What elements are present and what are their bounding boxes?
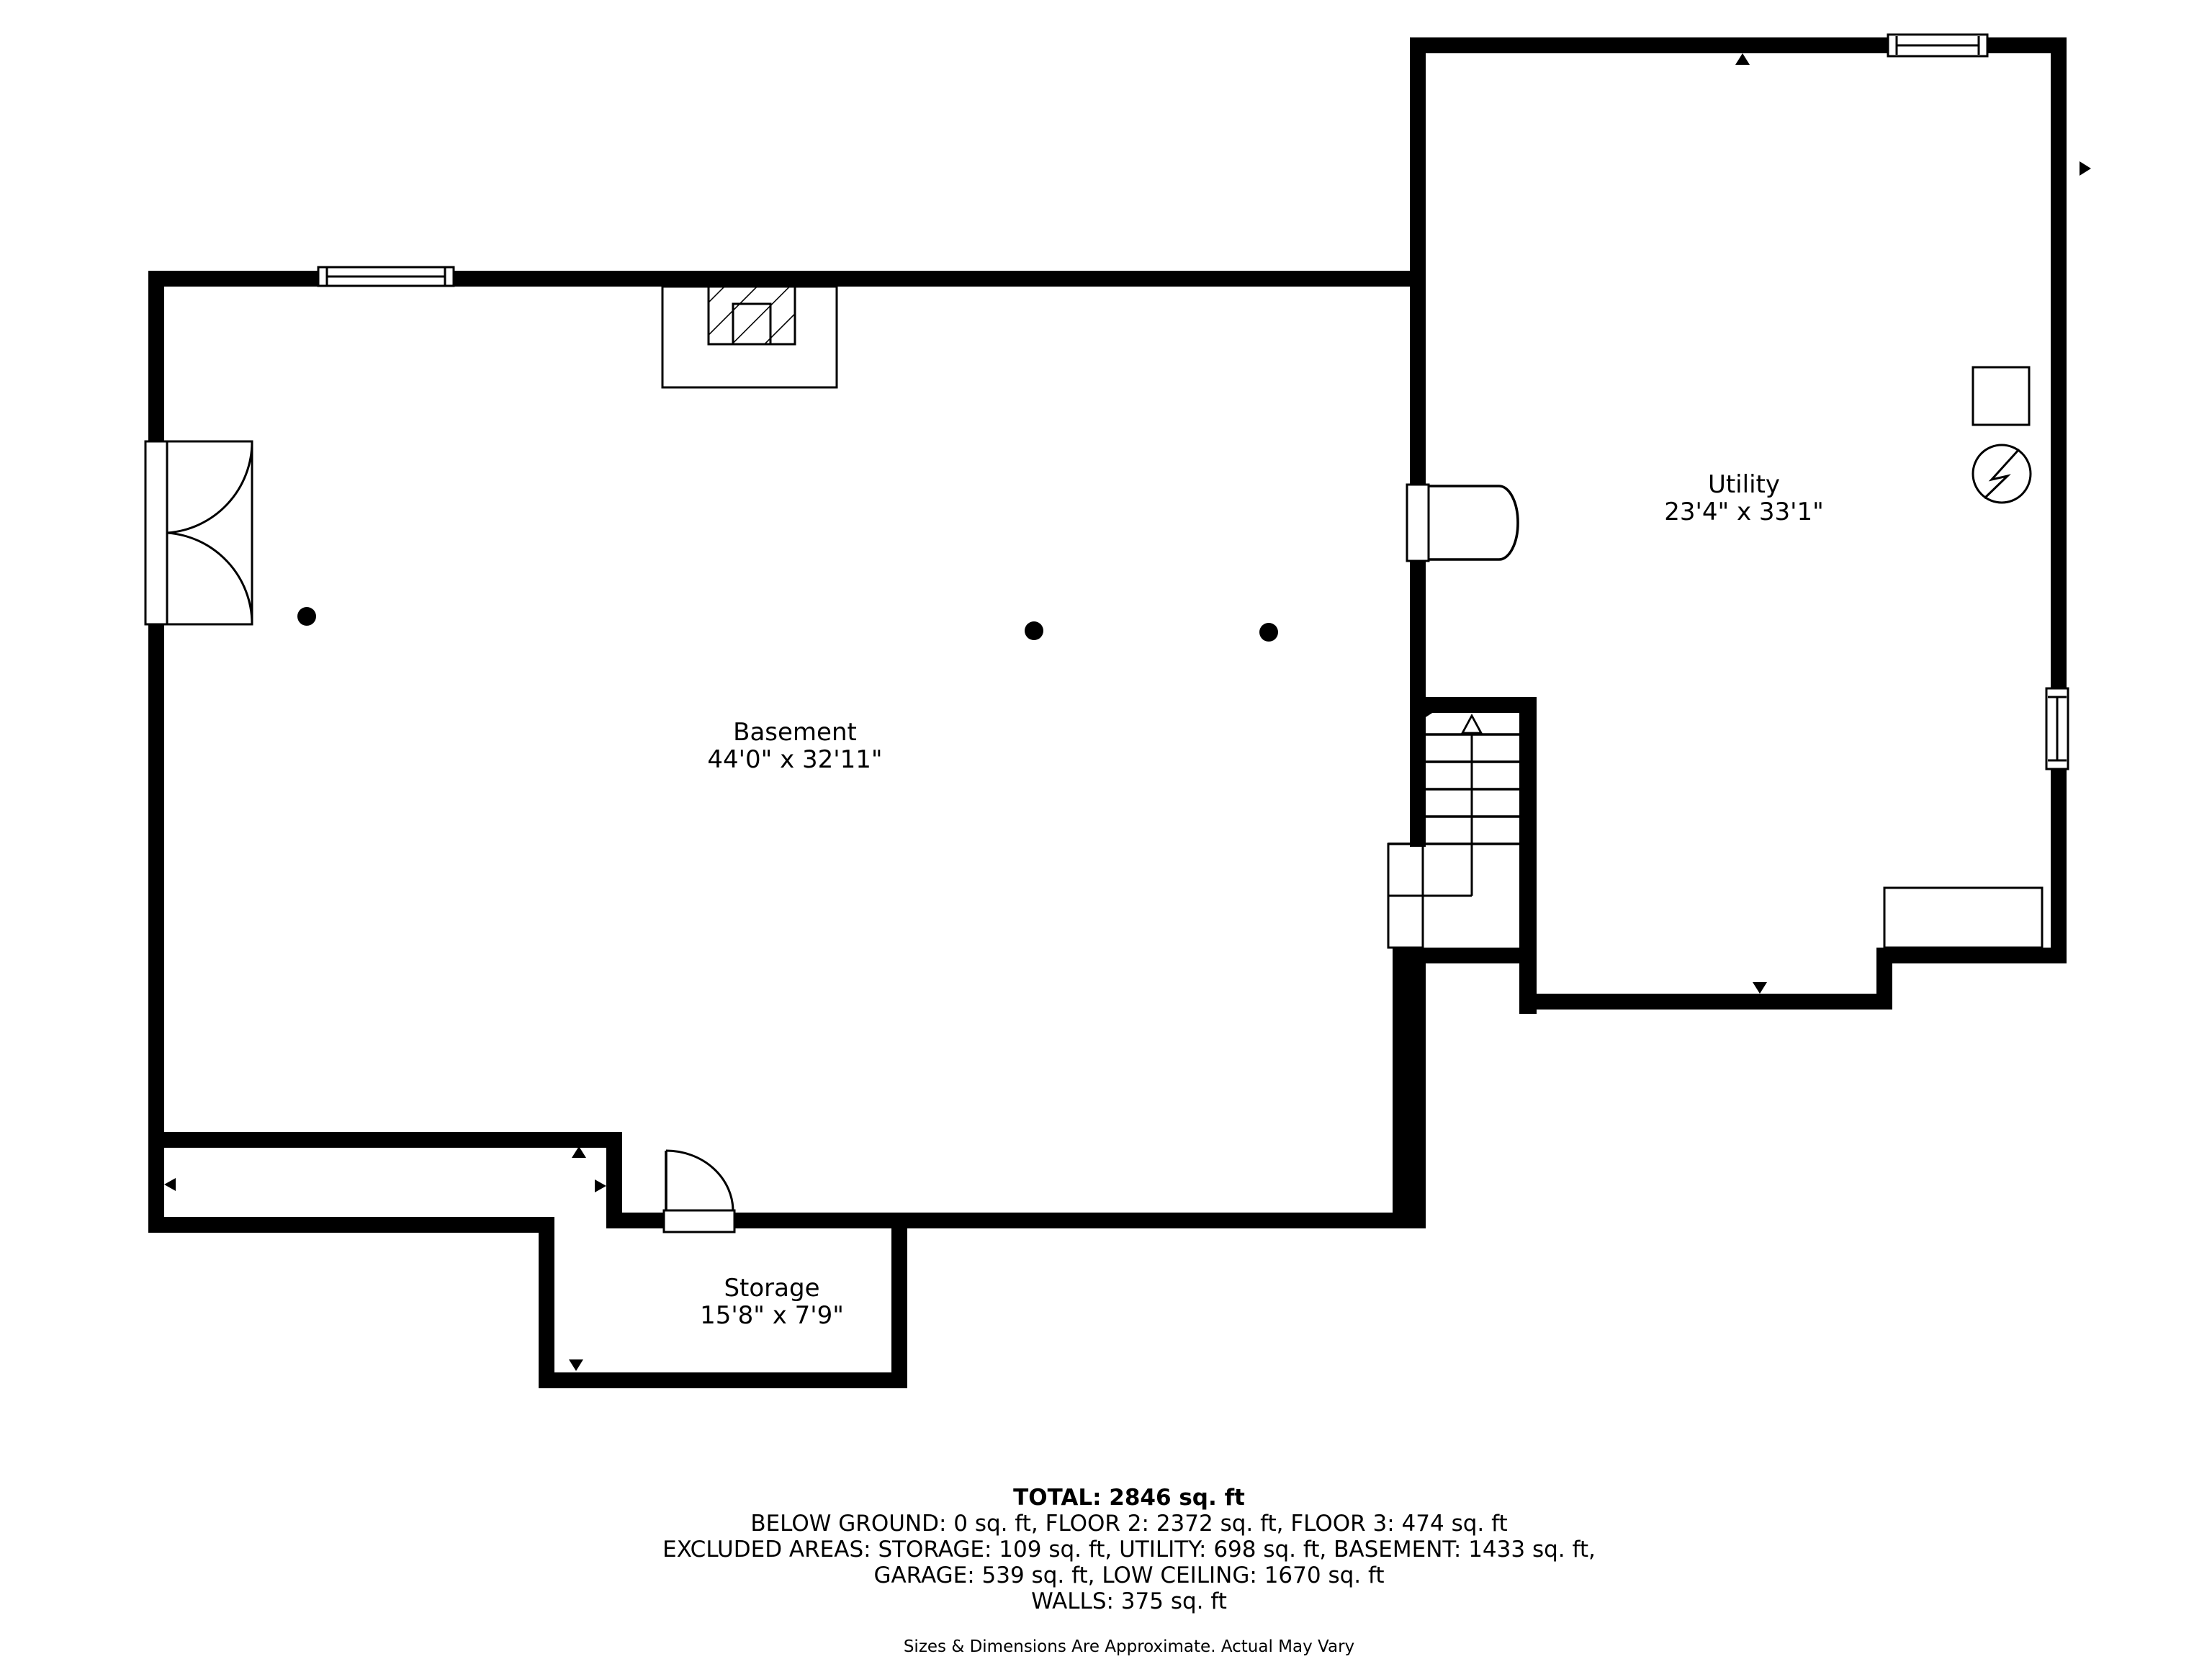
utility-top-window-icon — [1888, 35, 1987, 56]
marker-left-icon — [164, 1178, 176, 1191]
basement-right-wall-lower — [1393, 948, 1426, 1228]
storage-label: Storage 15'8" x 7'9" — [700, 1276, 844, 1331]
utility-bottom-wall-right — [1876, 948, 2067, 963]
total-area: TOTAL: 2846 sq. ft — [662, 1485, 1596, 1511]
room-dimensions: 15'8" x 7'9" — [700, 1303, 844, 1331]
room-name: Utility — [1664, 472, 1824, 500]
summary-line: GARAGE: 539 sq. ft, LOW CEILING: 1670 sq… — [662, 1563, 1596, 1588]
marker-right-icon — [2080, 161, 2091, 176]
room-dimensions: 23'4" x 33'1" — [1664, 500, 1824, 527]
utility-bottom-wall-left — [1537, 994, 1892, 1010]
column-dot — [1025, 621, 1043, 640]
chimney-hatch — [709, 287, 795, 344]
utility-fixtures — [1884, 367, 2042, 948]
marker-right-icon — [595, 1179, 606, 1192]
storage-right-wall — [891, 1213, 907, 1388]
stair-treads — [1388, 734, 1519, 844]
support-columns — [297, 607, 1278, 642]
area-summary: TOTAL: 2846 sq. ft BELOW GROUND: 0 sq. f… — [662, 1485, 1596, 1614]
storage-bottom-wall — [539, 1372, 907, 1388]
stairwell-right-wall — [1519, 697, 1537, 1014]
basement-window-icon — [318, 267, 454, 286]
marker-down-icon — [569, 1359, 583, 1371]
equipment-box — [1884, 888, 2042, 948]
page: Basement 44'0" x 32'11" Utility 23'4" x … — [0, 0, 2212, 1659]
electric-meter-icon — [1973, 445, 2031, 503]
basement-left-wall — [148, 271, 164, 1233]
basement-label: Basement 44'0" x 32'11" — [707, 720, 882, 775]
utility-left-wall — [1410, 37, 1426, 287]
marker-up-icon — [1735, 53, 1750, 65]
electrical-panel-icon — [1973, 367, 2029, 425]
summary-line: WALLS: 375 sq. ft — [662, 1588, 1596, 1614]
column-dot — [1259, 623, 1278, 642]
chimney — [662, 287, 837, 387]
windows — [318, 35, 2068, 769]
floor-plan-drawing — [0, 0, 2212, 1659]
room-name: Storage — [700, 1276, 844, 1303]
storage-left-wall — [539, 1217, 554, 1388]
summary-line: EXCLUDED AREAS: STORAGE: 109 sq. ft, UTI… — [662, 1537, 1596, 1563]
utility-door-icon — [1407, 485, 1518, 561]
utility-right-window-icon — [2046, 688, 2068, 769]
staircase — [1388, 716, 1519, 948]
storage-door-icon — [664, 1151, 734, 1232]
floor-plan: Basement 44'0" x 32'11" Utility 23'4" x … — [0, 0, 2212, 1659]
basement-right-wall-upper — [1410, 287, 1426, 485]
doors — [145, 441, 1518, 1232]
low-ceiling-top-wall — [148, 1132, 622, 1148]
marker-up-icon — [572, 1146, 586, 1158]
marker-down-icon — [1753, 982, 1767, 994]
room-name: Basement — [707, 720, 882, 747]
walls — [148, 37, 2067, 1388]
column-dot — [297, 607, 316, 626]
basement-right-wall-middle — [1410, 562, 1426, 847]
disclaimer: Sizes & Dimensions Are Approximate. Actu… — [904, 1636, 1354, 1656]
summary-line: BELOW GROUND: 0 sq. ft, FLOOR 2: 2372 sq… — [662, 1511, 1596, 1537]
low-ceiling-bottom-wall — [148, 1217, 554, 1233]
room-dimensions: 44'0" x 32'11" — [707, 747, 882, 775]
utility-right-wall — [2051, 37, 2067, 963]
double-door-icon — [145, 441, 252, 624]
dimension-markers — [164, 53, 2091, 1371]
stair-up-arrow-icon — [1462, 716, 1481, 733]
utility-label: Utility 23'4" x 33'1" — [1664, 472, 1824, 527]
